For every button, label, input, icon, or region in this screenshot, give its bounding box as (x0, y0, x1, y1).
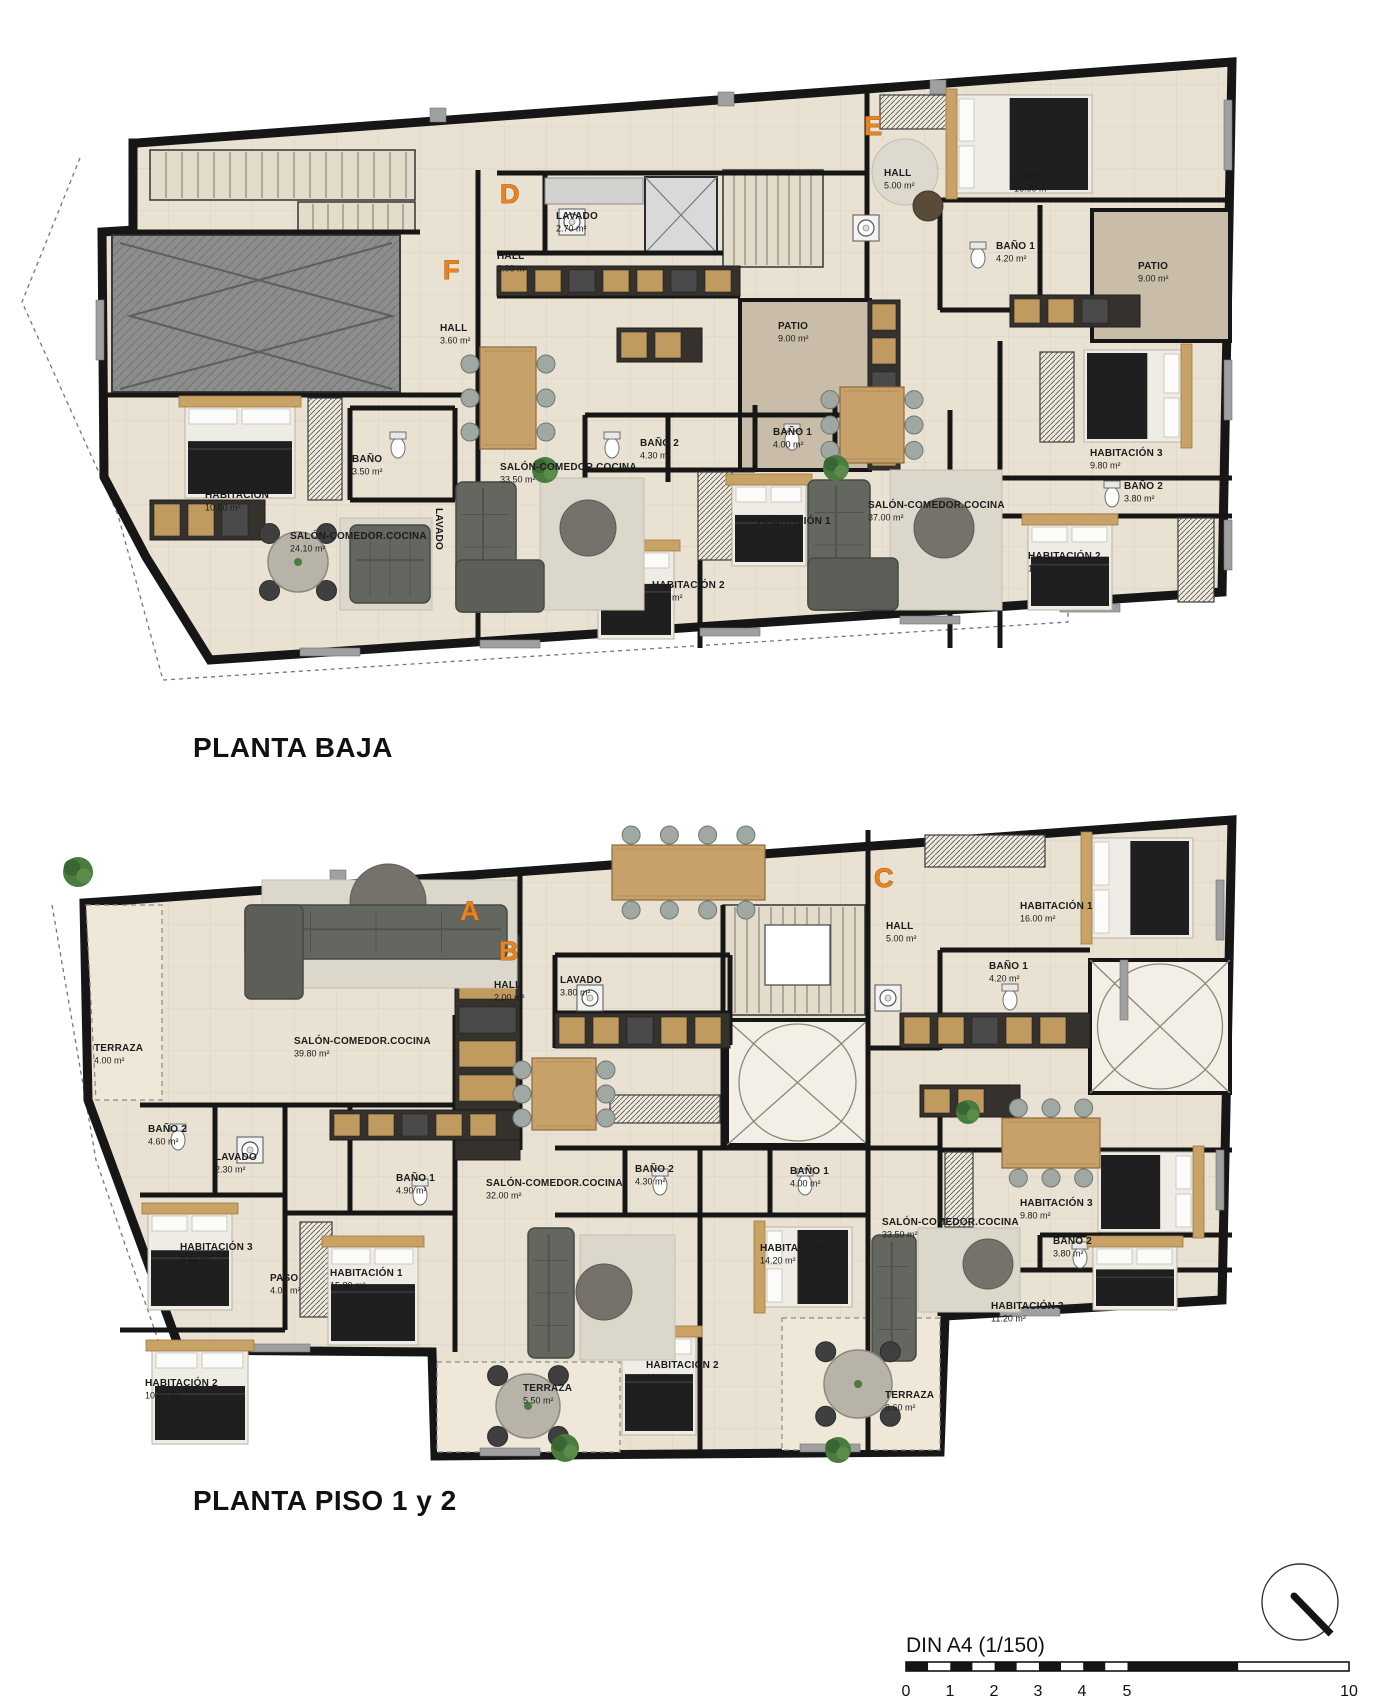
kitchen-counter (497, 266, 740, 296)
scale-tick: 0 (902, 1683, 911, 1700)
stairs (298, 202, 415, 232)
room-label-area: 9.00 m² (1138, 274, 1169, 284)
window-sill (718, 92, 734, 106)
room-label-area: 4.00 m² (270, 1286, 301, 1296)
apartment-letter: B (499, 936, 519, 966)
room-label-area: 3.80 m² (1053, 1249, 1084, 1259)
room-label-area: 4.60 m² (148, 1137, 179, 1147)
room-label-area: 4.30 m² (635, 1177, 666, 1187)
room-label-name: HALL (886, 921, 913, 932)
room-label-name: HABITACIÓN 1 (758, 514, 831, 527)
plant (551, 1434, 579, 1462)
window-sill (700, 628, 760, 636)
floor-plan-sheet: DIN A4 (1/150)01234510PLANTA BAJAFHALL3.… (0, 0, 1389, 1704)
window-sill (96, 300, 104, 360)
room-label-area: 9.00 m² (778, 334, 809, 344)
scale-tick: 1 (946, 1683, 955, 1700)
room-label-area: 2.00 m² (497, 264, 528, 274)
room-label-name: LAVADO (560, 975, 602, 986)
window-sill (1216, 1150, 1224, 1210)
apartment-letter: C (874, 863, 894, 893)
wardrobe (308, 398, 342, 500)
window-sill (250, 1344, 310, 1352)
plant (825, 1437, 851, 1463)
room-label-area: 4.20 m² (989, 974, 1020, 984)
room-label-name: TERRAZA (523, 1383, 572, 1394)
room-label-name: HABITACIÓN (205, 488, 269, 501)
room-label-area: 12.00 m² (758, 529, 794, 539)
room-label-name: HABITACIÓN 3 (1090, 446, 1163, 459)
room-label-name: LAVADO (433, 508, 444, 550)
window-sill (430, 108, 446, 122)
room-label-name: HABITACIÓN 2 (145, 1376, 218, 1389)
wardrobe (1040, 352, 1074, 442)
room-label-name: SALÓN-COMEDOR.COCINA (882, 1215, 1019, 1228)
bed (1084, 344, 1192, 448)
room-label-area: 4.00 m² (790, 1179, 821, 1189)
room-label-area: 16.00 m² (1020, 914, 1056, 924)
room-label-name: BAÑO 1 (396, 1171, 435, 1184)
wardrobe (1178, 518, 1214, 602)
lightwell (727, 1020, 868, 1145)
bed (946, 89, 1092, 199)
stairs (150, 150, 415, 200)
dining-table (821, 387, 923, 463)
toilet (604, 432, 620, 458)
scale-label: DIN A4 (1/150) (906, 1634, 1045, 1657)
room-label-name: BAÑO 2 (1124, 479, 1163, 492)
apartment-letter: F (443, 255, 460, 285)
room-label-area: 15.80 m² (330, 1281, 366, 1291)
kitchen-counter (617, 328, 702, 362)
toilet (970, 242, 986, 268)
room-label-area: 9.40 m² (180, 1255, 211, 1265)
room-label-name: BAÑO 2 (640, 436, 679, 449)
toilet (390, 432, 406, 458)
room-label-name: BAÑO 2 (1053, 1234, 1092, 1247)
floor-plans-drawing: DIN A4 (1/150)01234510PLANTA BAJAFHALL3.… (0, 0, 1389, 1704)
room-label-name: HABITACIÓN 2 (991, 1299, 1064, 1312)
room-label-area: 10.00 m² (145, 1391, 181, 1401)
room-label-area: 14.20 m² (760, 1256, 796, 1266)
room-label-name: HABITACIÓN 2 (1028, 549, 1101, 562)
toilet (1002, 984, 1018, 1010)
window-sill (1224, 100, 1232, 170)
room-label-name: BAÑO 2 (635, 1162, 674, 1175)
room-label-area: 4.30 m² (640, 451, 671, 461)
room-label-name: BAÑO 2 (148, 1122, 187, 1135)
room-label-area: 33.50 m² (500, 475, 536, 485)
room-label-name: LAVADO (556, 211, 598, 222)
window-sill (900, 616, 960, 624)
room-label-name: HABITACIÓN 2 (646, 1358, 719, 1371)
room-label-name: HALL (497, 251, 524, 262)
room-label-area: 5.00 m² (884, 181, 915, 191)
garage-ramp (112, 235, 400, 392)
room-label-name: BAÑO 1 (773, 425, 812, 438)
kitchen-counter (330, 1110, 520, 1140)
room-label-name: LAVADO (215, 1152, 257, 1163)
scale-bar (906, 1662, 1349, 1671)
room-label-name: HABITACIÓN 1 (330, 1266, 403, 1279)
window-sill (1216, 880, 1224, 940)
room-label-area: 24.10 m² (290, 544, 326, 554)
room-label-area: 2.00 m² (494, 993, 525, 1003)
plant (63, 857, 93, 887)
room-label-area: 8.30 m² (652, 593, 683, 603)
room-label-name: HABITACIÓN 1 (1014, 169, 1087, 182)
washing-machine (875, 985, 901, 1011)
bed (1098, 1146, 1204, 1238)
room-label-area: 3.60 m² (440, 336, 471, 346)
scale-tick: 10 (1340, 1683, 1358, 1700)
room-label-area: 3.80 m² (560, 988, 591, 998)
room-label-name: HABITACIÓN 1 (1020, 899, 1093, 912)
plan-title: PLANTA PISO 1 y 2 (193, 1485, 457, 1516)
room-label-area: 6.60 m² (885, 1403, 916, 1413)
window-sill (480, 640, 540, 648)
room-label-area: 2.70 m² (556, 224, 587, 234)
window-sill (1224, 520, 1232, 570)
room-label-name: SALÓN-COMEDOR.COCINA (290, 529, 427, 542)
bed (1081, 832, 1193, 944)
wardrobe (925, 835, 1045, 867)
dining-table (461, 347, 555, 449)
plant (823, 455, 849, 481)
room-label-name: HALL (440, 323, 467, 334)
wardrobe (945, 1152, 973, 1227)
room-label-name: HABITACIÓN 2 (652, 578, 725, 591)
room-label-area: 4.90 m² (396, 1186, 427, 1196)
plant (956, 1100, 980, 1124)
room-label-name: HALL (494, 980, 521, 991)
room-label-name: BAÑO (352, 452, 382, 465)
wardrobe (610, 1095, 720, 1123)
window-sill (1120, 960, 1128, 1020)
room-label-name: HALL (884, 168, 911, 179)
dining-table (1002, 1099, 1100, 1187)
bed (179, 396, 301, 498)
room-label-area: 16.00 m² (1014, 184, 1050, 194)
room-label-name: SALÓN-COMEDOR.COCINA (486, 1176, 623, 1189)
room-label-name: PASO (270, 1273, 298, 1284)
room-label-name: SALÓN-COMEDOR.COCINA (500, 460, 637, 473)
room-label-area: 37.00 m² (868, 513, 904, 523)
window-sill (480, 1448, 540, 1456)
room-label-area: 3.80 m² (1124, 494, 1155, 504)
apartment-letter: E (864, 111, 882, 141)
room-label-area: 10.60 m² (646, 1373, 682, 1383)
room-label-name: BAÑO 1 (996, 239, 1035, 252)
room-label-name: PATIO (778, 321, 808, 332)
room-label-area: 11.20 m² (991, 1314, 1026, 1324)
apartment-letter: A (460, 896, 480, 926)
washing-machine (853, 215, 879, 241)
room-label-area: 4.00 m² (94, 1056, 125, 1066)
terrace-table (816, 1342, 901, 1427)
room-label-name: PATIO (1138, 261, 1168, 272)
room-label-area: 32.00 m² (486, 1191, 522, 1201)
room-label-area: 2.30 m² (215, 1165, 246, 1175)
room-label-name: SALÓN-COMEDOR.COCINA (868, 498, 1005, 511)
apartment-letter: D (500, 179, 520, 209)
toilet (1104, 481, 1120, 507)
bed (322, 1236, 424, 1345)
room-label-area: 5.50 m² (523, 1396, 554, 1406)
room-label-name: BAÑO 1 (989, 959, 1028, 972)
room-label-area: 9.80 m² (1020, 1211, 1051, 1221)
lightwell (1090, 960, 1230, 1093)
room-label-area: 10.60 m² (205, 503, 241, 513)
kitchen-counter (555, 1013, 730, 1048)
plan-title: PLANTA BAJA (193, 732, 393, 763)
room-label-name: SALÓN-COMEDOR.COCINA (294, 1034, 431, 1047)
room-label-area: 33.50 m² (882, 1230, 918, 1240)
room-label-area: 4.20 m² (996, 254, 1027, 264)
room-label-name: HABITACIÓN 1 (760, 1241, 833, 1254)
room-label-area: 10.00 m² (1028, 564, 1064, 574)
scale-tick: 2 (990, 1683, 999, 1700)
room-label-name: BAÑO 1 (790, 1164, 829, 1177)
sofa (528, 1228, 574, 1358)
scale-tick: 3 (1034, 1683, 1043, 1700)
kitchen-counter (1010, 295, 1140, 327)
kitchen-counter (900, 1013, 1090, 1048)
window-sill (930, 80, 946, 94)
window-sill (300, 648, 360, 656)
terrace-table (488, 1366, 569, 1447)
bed (1022, 514, 1118, 610)
room-label-area: 9.80 m² (1090, 461, 1121, 471)
scale-tick: 5 (1123, 1683, 1132, 1700)
dining-table (513, 1058, 615, 1130)
stairs (723, 170, 823, 267)
window-sill (1224, 360, 1232, 420)
bed (1087, 1236, 1183, 1310)
room-label-name: TERRAZA (94, 1043, 143, 1054)
room-label-area: 3.50 m² (352, 467, 383, 477)
room-label-name: TERRAZA (885, 1390, 934, 1401)
room-label-area: 39.80 m² (294, 1049, 330, 1059)
north-indicator-icon (1262, 1564, 1338, 1640)
room-label-area: 4.00 m² (773, 440, 804, 450)
room-label-name: HABITACIÓN 3 (1020, 1196, 1093, 1209)
bed (754, 1221, 852, 1313)
room-label-area: 5.00 m² (886, 934, 917, 944)
room-label-name: HABITACIÓN 3 (180, 1240, 253, 1253)
scale-tick: 4 (1078, 1683, 1087, 1700)
